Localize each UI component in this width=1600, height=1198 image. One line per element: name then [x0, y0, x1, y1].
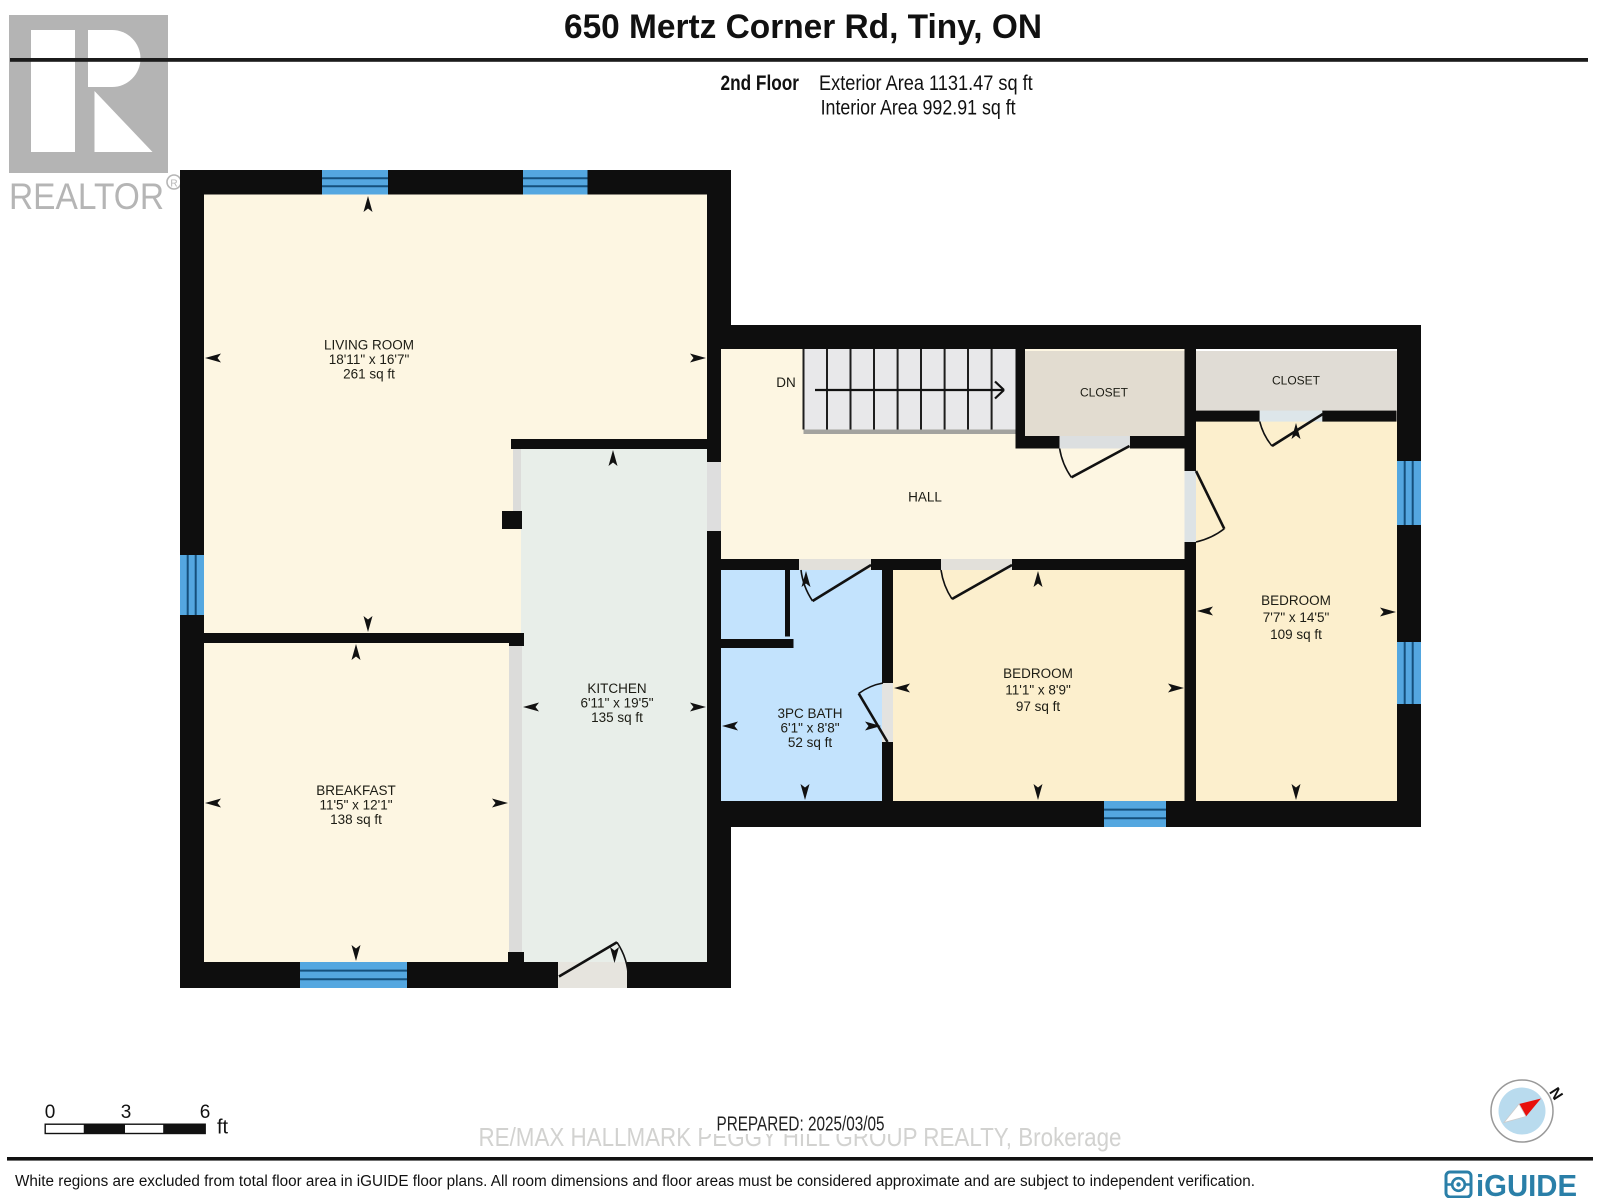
svg-text:BREAKFAST: BREAKFAST	[316, 783, 396, 798]
svg-text:White regions are excluded fro: White regions are excluded from total fl…	[15, 1173, 1255, 1190]
svg-text:DN: DN	[776, 375, 796, 390]
svg-text:REALTOR: REALTOR	[9, 176, 164, 217]
svg-text:KITCHEN: KITCHEN	[587, 681, 646, 696]
svg-text:7'7" x 14'5": 7'7" x 14'5"	[1263, 610, 1330, 625]
svg-text:3: 3	[121, 1102, 132, 1123]
svg-text:6: 6	[200, 1102, 211, 1123]
svg-text:0: 0	[45, 1102, 56, 1123]
svg-text:BEDROOM: BEDROOM	[1261, 593, 1331, 608]
svg-text:BEDROOM: BEDROOM	[1003, 666, 1073, 681]
svg-text:6'11" x 19'5": 6'11" x 19'5"	[580, 696, 653, 711]
svg-text:650 Mertz Corner Rd, Tiny, ON: 650 Mertz Corner Rd, Tiny, ON	[564, 8, 1042, 46]
svg-text:18'11" x 16'7": 18'11" x 16'7"	[329, 352, 410, 367]
svg-text:109 sq ft: 109 sq ft	[1270, 627, 1322, 642]
svg-text:R: R	[170, 179, 177, 190]
svg-text:LIVING ROOM: LIVING ROOM	[324, 338, 414, 353]
svg-text:11'1" x 8'9": 11'1" x 8'9"	[1005, 683, 1071, 698]
svg-text:CLOSET: CLOSET	[1272, 374, 1321, 388]
svg-text:PREPARED: 2025/03/05: PREPARED: 2025/03/05	[717, 1114, 885, 1136]
svg-text:138 sq ft: 138 sq ft	[330, 812, 382, 827]
svg-text:97 sq ft: 97 sq ft	[1016, 699, 1061, 714]
svg-text:3PC BATH: 3PC BATH	[777, 706, 842, 721]
svg-text:261 sq ft: 261 sq ft	[343, 367, 395, 382]
svg-text:iGUIDE: iGUIDE	[1476, 1168, 1577, 1198]
svg-text:6'1" x 8'8": 6'1" x 8'8"	[780, 721, 839, 736]
svg-text:135 sq ft: 135 sq ft	[591, 710, 643, 725]
svg-text:Interior Area 992.91 sq ft: Interior Area 992.91 sq ft	[821, 97, 1016, 120]
svg-text:HALL: HALL	[908, 490, 942, 505]
svg-text:Exterior Area 1131.47 sq ft: Exterior Area 1131.47 sq ft	[819, 72, 1033, 95]
svg-text:52 sq ft: 52 sq ft	[788, 735, 833, 750]
svg-text:ft: ft	[217, 1117, 229, 1139]
svg-text:2nd Floor: 2nd Floor	[721, 72, 800, 95]
svg-text:11'5" x 12'1": 11'5" x 12'1"	[319, 798, 392, 813]
svg-text:CLOSET: CLOSET	[1080, 386, 1129, 400]
